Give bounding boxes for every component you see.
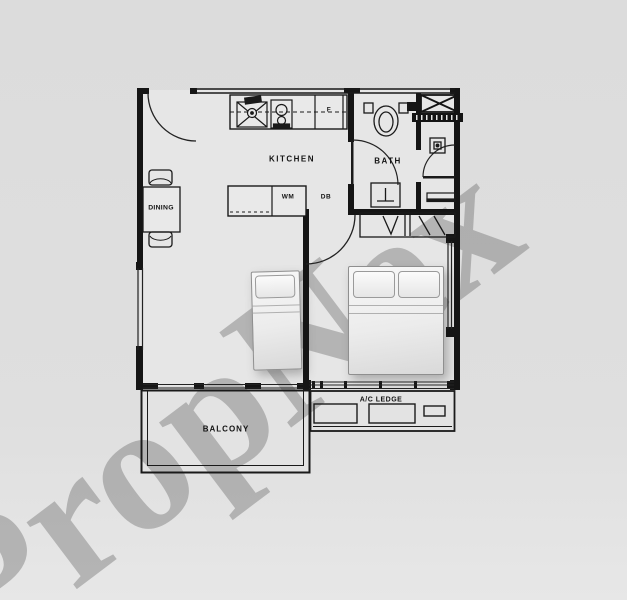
shower-compartment-door-swing [423,145,455,179]
left-window [138,268,143,350]
toilet-icon [364,103,408,136]
shelf-icon [427,193,455,202]
floor-plan-canvas: PropNex [0,0,627,600]
walls [136,88,460,390]
top-wall-lines [196,89,455,93]
bedroom-door-swing [306,215,355,264]
balcony-label: BALCONY [203,425,250,434]
kitchen-label: KITCHEN [269,155,315,164]
wardrobe [360,213,455,237]
wm-label: WM [282,194,295,201]
entrance-door-swing [148,93,196,141]
ac-unit [369,404,415,423]
balcony-sliding-door [143,385,303,389]
dining-label: DINING [148,205,174,212]
ac-unit [314,404,357,423]
riser-hatch [412,113,463,122]
wm-counter [228,186,306,216]
ac-ledge-label: A/C LEDGE [360,397,403,404]
plan-linework [0,0,627,600]
basin-icon [371,183,400,207]
ac-unit-small [424,406,445,416]
db-label: DB [321,194,331,201]
duct-shaft-icon [421,95,458,112]
bath-label: BATH [374,157,402,166]
bedroom-side-window [448,241,452,329]
fridge-label: F [327,107,331,114]
